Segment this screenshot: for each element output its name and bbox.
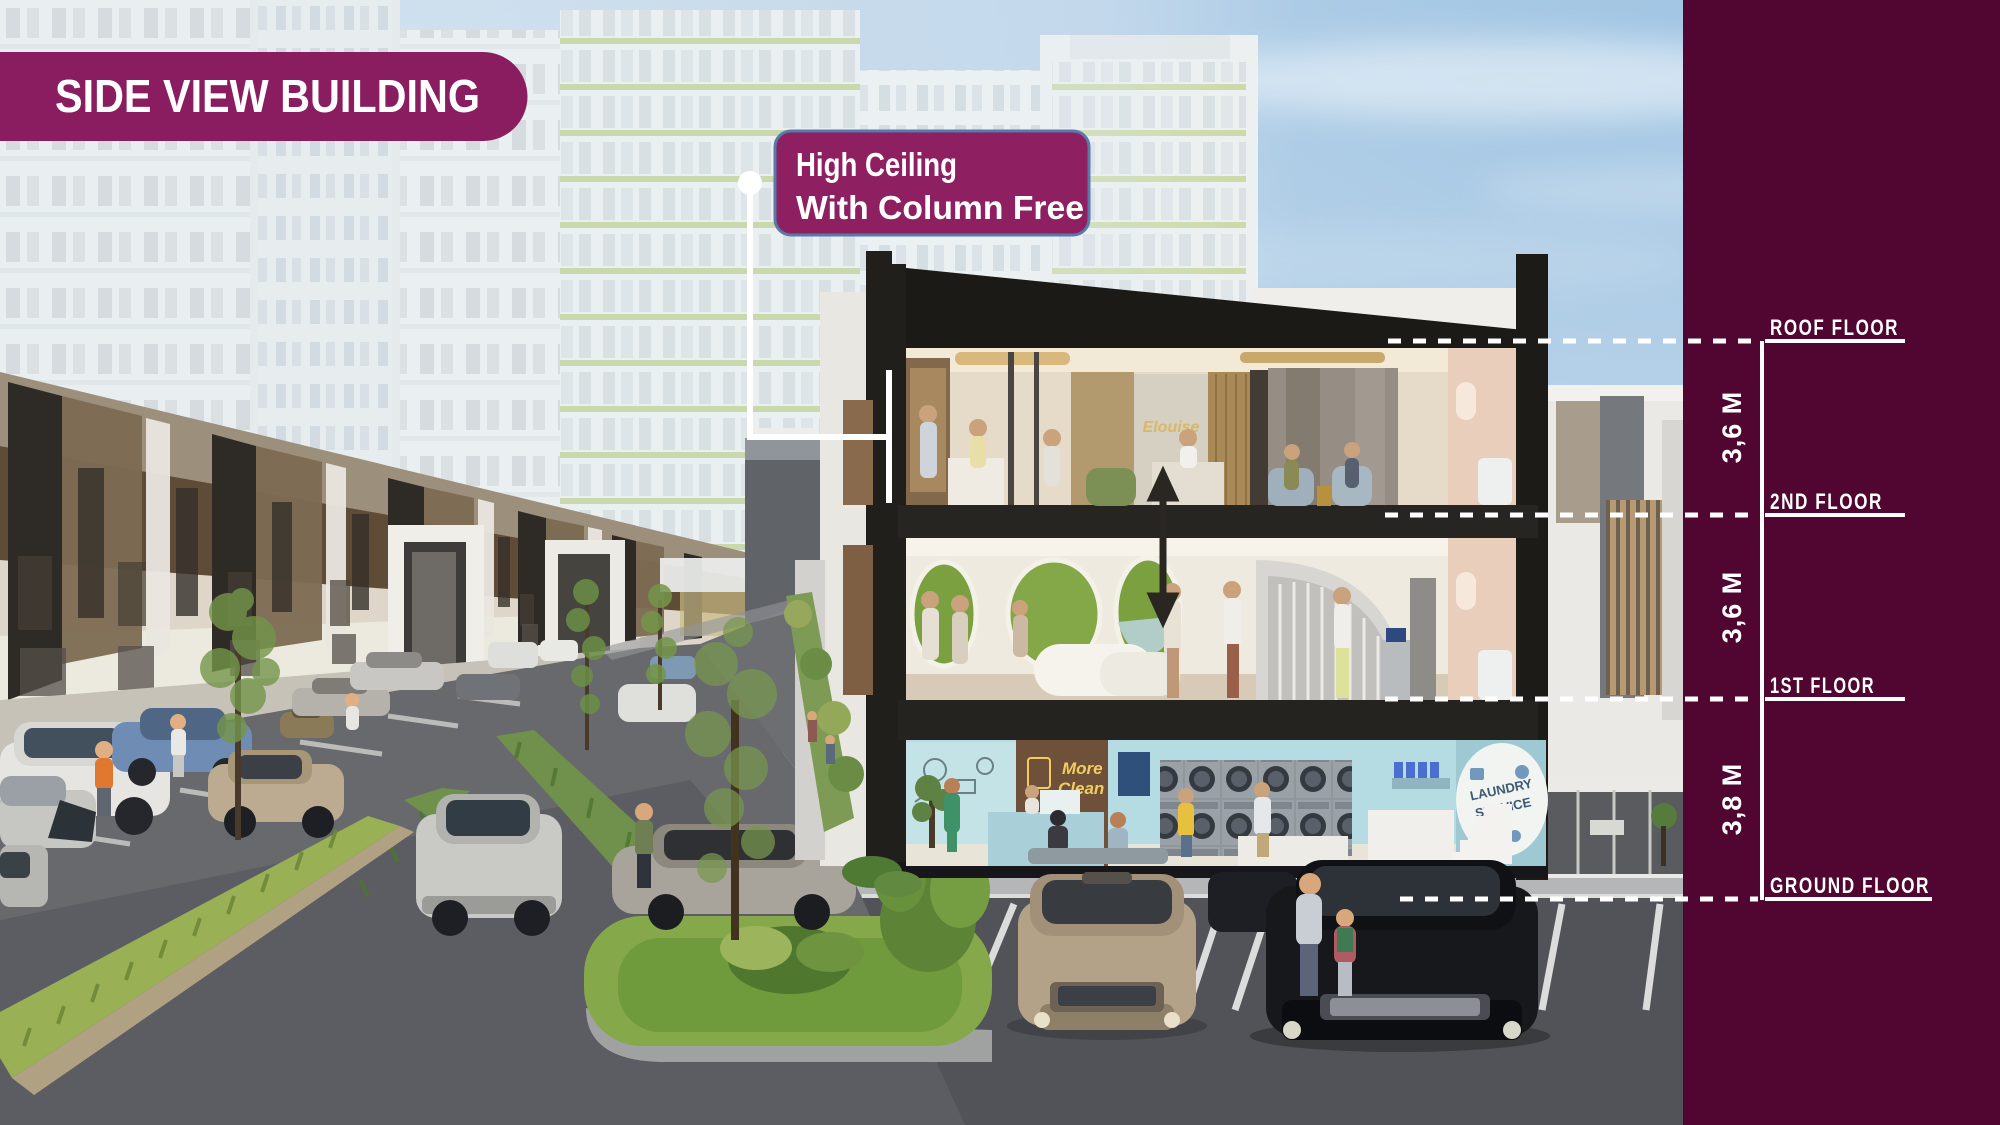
svg-text:3,6 M: 3,6 M	[1717, 391, 1747, 464]
svg-text:GROUND FLOOR: GROUND FLOOR	[1770, 873, 1930, 898]
svg-text:More: More	[1062, 759, 1103, 778]
svg-text:With Column Free: With Column Free	[796, 189, 1084, 226]
svg-text:SIDE VIEW BUILDING: SIDE VIEW BUILDING	[55, 70, 480, 122]
svg-text:3,6 M: 3,6 M	[1717, 571, 1747, 644]
svg-text:High Ceiling: High Ceiling	[796, 146, 957, 183]
svg-text:3,8 M: 3,8 M	[1717, 763, 1747, 836]
svg-text:1ST FLOOR: 1ST FLOOR	[1770, 673, 1875, 698]
svg-text:2ND FLOOR: 2ND FLOOR	[1770, 489, 1883, 514]
svg-text:ROOF FLOOR: ROOF FLOOR	[1770, 315, 1899, 340]
